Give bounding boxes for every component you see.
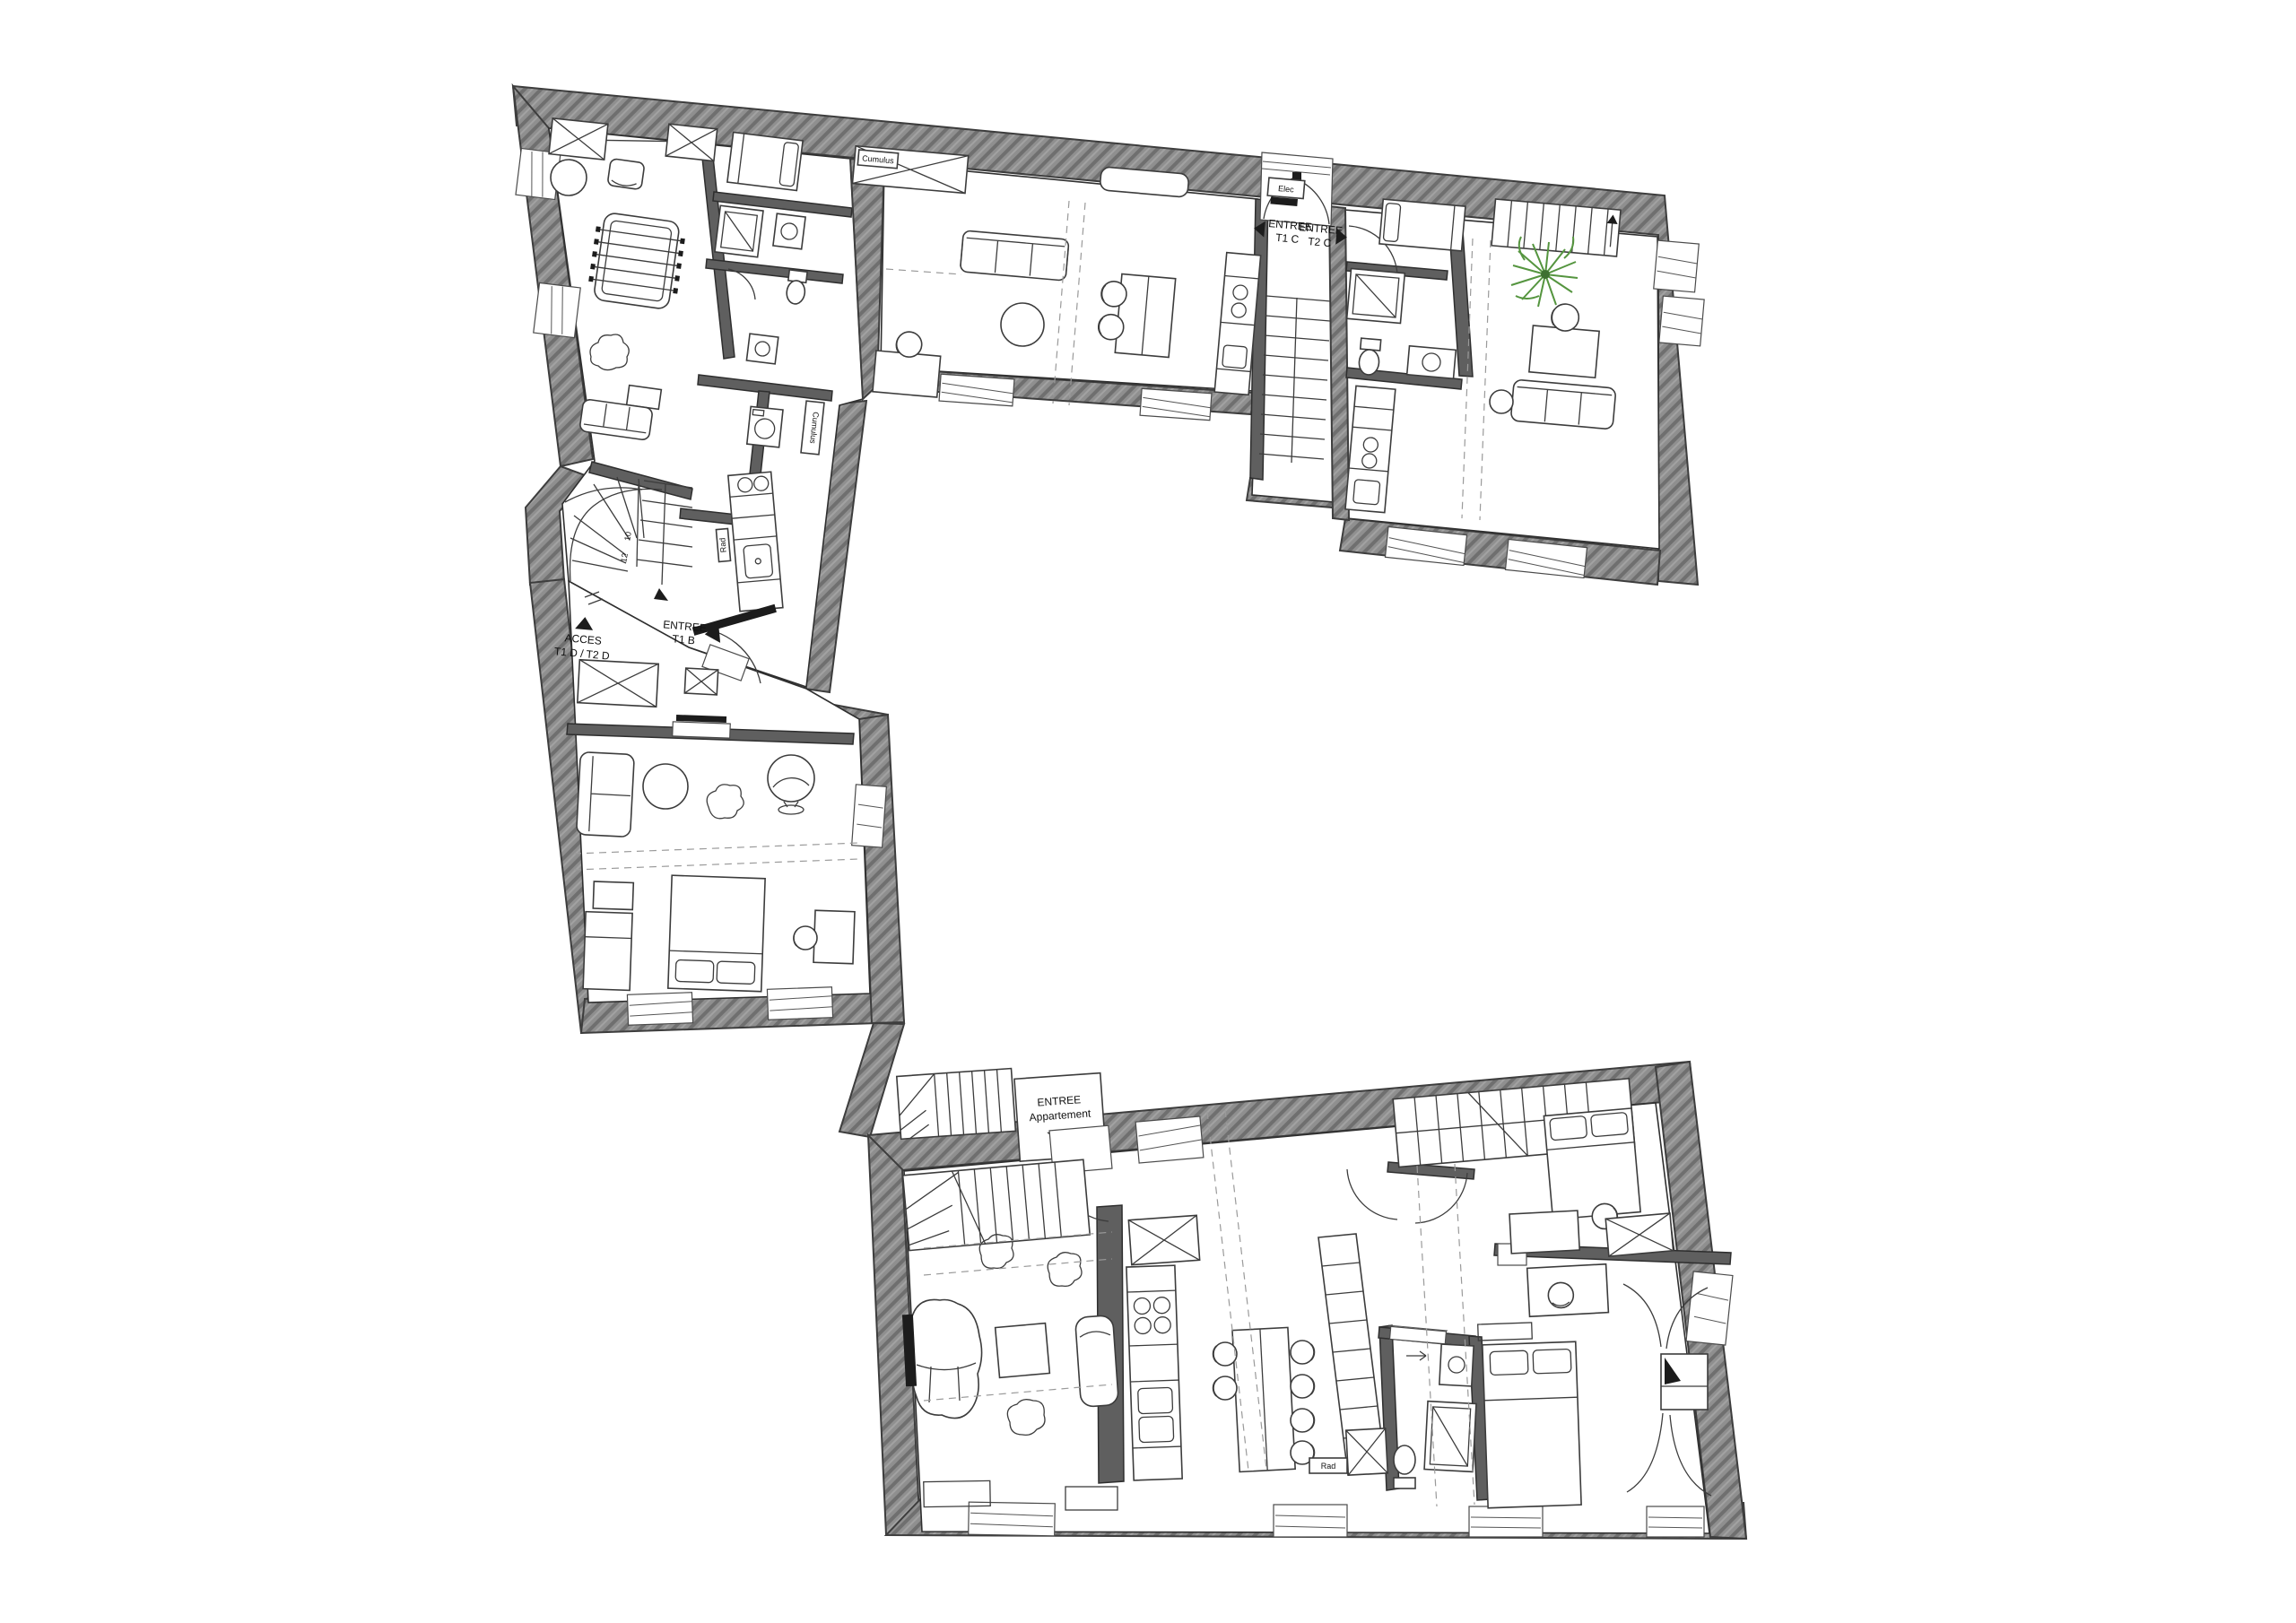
washing-machine [747,406,783,447]
kitchen-counter [1126,1265,1182,1480]
window [1140,388,1212,420]
window [1469,1506,1543,1537]
window [534,282,580,337]
bed [1379,199,1465,251]
window [1647,1506,1704,1537]
desk-chair [1527,1264,1609,1317]
stair-number-12: 12 [619,552,630,563]
organic-sofa [909,1299,981,1418]
shower [1424,1402,1476,1472]
armchair [607,159,645,190]
elec-label: Elec [1278,184,1295,195]
bathroom-sink [773,213,805,249]
shaft-box [1346,1428,1388,1475]
window [939,374,1014,406]
storage-closet [665,124,717,161]
shaft-box [1605,1213,1673,1256]
entree-t1c-line2: T1 C [1275,231,1300,246]
round-table [551,160,587,195]
rad-label: Rad [1321,1462,1336,1471]
bathroom-sink [1439,1344,1474,1386]
radiator: Rad [716,528,730,561]
floor-plan-drawing: Cumulus Rad 10 12 ACCES T1 D / T2 [0,0,2296,1623]
window [852,785,887,847]
sofa [960,230,1069,281]
bed [1544,1108,1640,1219]
sofa [1510,379,1616,430]
bathroom-sink [746,334,778,364]
staircase [1492,199,1621,256]
window [1135,1116,1204,1163]
bed [1483,1341,1581,1508]
radiator-label-group: Rad [1309,1458,1347,1473]
bed [727,132,803,190]
window [1274,1505,1347,1537]
rad-label: Rad [717,537,727,552]
window [1659,296,1704,346]
shaft-box [1128,1215,1199,1264]
exterior-stair [897,1069,1016,1140]
entree-t2c-line2: T2 C [1308,235,1332,249]
coffee-table [996,1324,1050,1378]
window [627,993,692,1025]
shaft-box [578,660,658,707]
entree-t1b-line2: T1 B [672,632,695,647]
stair-number-10: 10 [622,531,633,542]
window [1654,240,1700,292]
side-table [1490,390,1513,413]
round-table [1001,303,1044,346]
round-table [643,764,688,809]
window [1686,1271,1733,1345]
bathroom-sink [1407,346,1457,378]
toilet [1394,1445,1415,1488]
window [767,987,832,1020]
lounge-chair [1075,1315,1119,1408]
storage-closet [549,118,608,160]
window [969,1502,1056,1536]
sofa [577,751,635,837]
bed [668,875,765,992]
shaft-box [684,668,717,695]
shower [1347,268,1405,323]
shower [715,205,763,256]
floor-plan-page: Cumulus Rad 10 12 ACCES T1 D / T2 [0,0,2296,1623]
